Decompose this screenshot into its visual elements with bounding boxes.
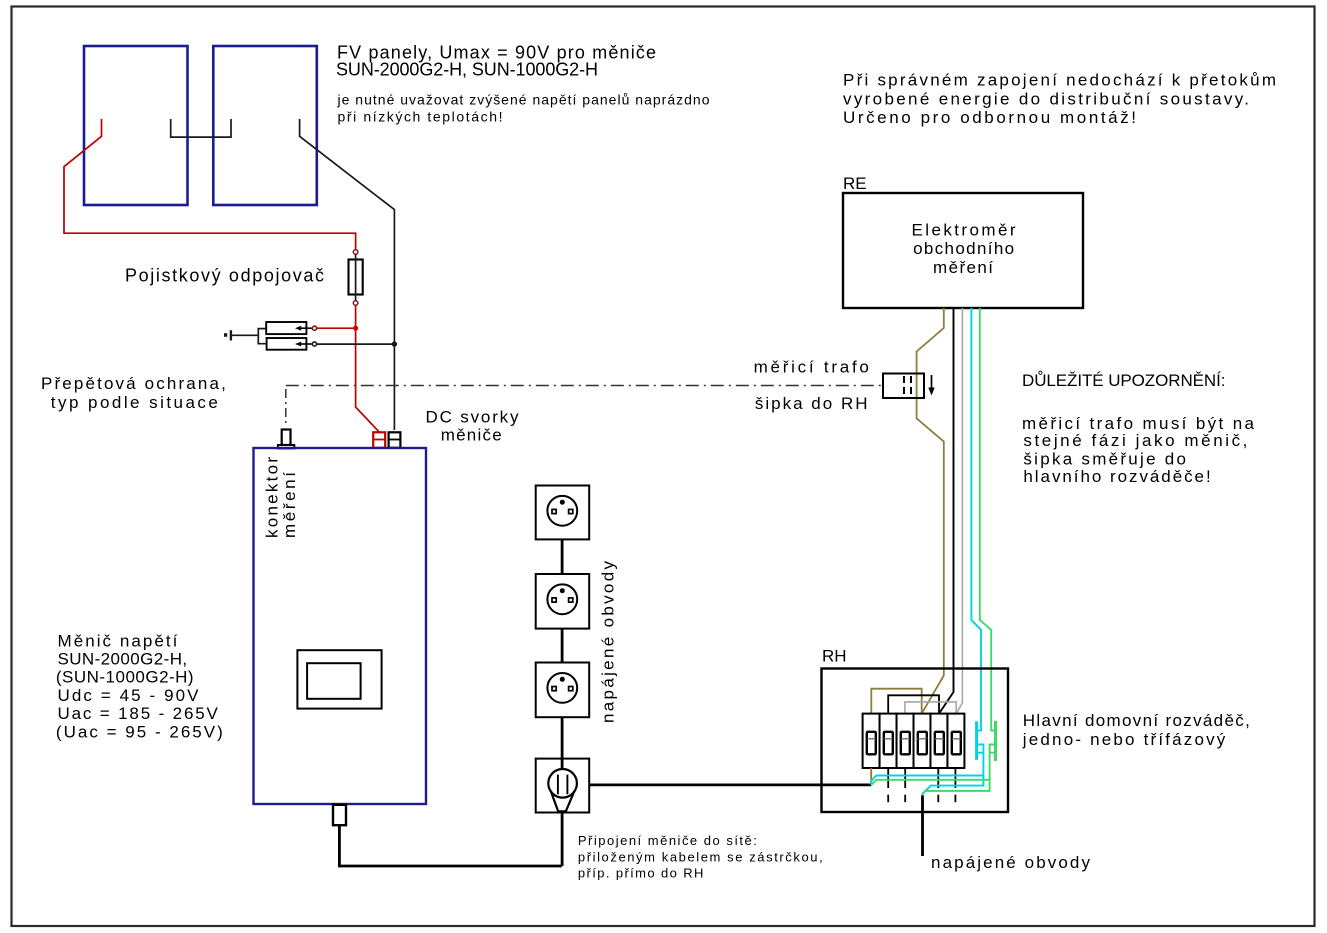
svg-text:SUN-2000G2-H,: SUN-2000G2-H, — [58, 650, 188, 669]
svg-text:Připojení měniče do sítě:: Připojení měniče do sítě: — [578, 833, 757, 848]
svg-text:RH: RH — [822, 647, 847, 666]
svg-text:příp. přímo do RH: příp. přímo do RH — [578, 866, 704, 881]
svg-text:Určeno pro odbornou montáž!: Určeno pro odbornou montáž! — [843, 108, 1136, 127]
svg-text:DC svorky: DC svorky — [426, 407, 520, 426]
svg-text:Pojistkový odpojovač: Pojistkový odpojovač — [125, 266, 324, 286]
svg-text:(SUN-1000G2-H): (SUN-1000G2-H) — [56, 668, 194, 687]
svg-text:obchodního: obchodního — [913, 239, 1014, 258]
svg-text:přiloženým kabelem se zástrčko: přiloženým kabelem se zástrčkou, — [578, 849, 823, 864]
svg-text:stejné fázi jako měnič,: stejné fázi jako měnič, — [1023, 431, 1247, 450]
svg-text:měření: měření — [280, 472, 299, 538]
svg-text:šipka směřuje do: šipka směřuje do — [1023, 450, 1186, 469]
svg-text:je nutné uvažovat zvýšené napě: je nutné uvažovat zvýšené napětí panelů … — [337, 92, 710, 108]
svg-text:typ podle situace: typ podle situace — [51, 393, 218, 412]
svg-text:napájené obvody: napájené obvody — [599, 561, 618, 724]
svg-text:hlavního rozváděče!: hlavního rozváděče! — [1023, 467, 1210, 486]
svg-text:šipka do RH: šipka do RH — [755, 394, 868, 413]
svg-text:měřicí trafo musí být na: měřicí trafo musí být na — [1022, 414, 1255, 433]
svg-text:měření: měření — [933, 258, 993, 277]
svg-text:Uac = 185 - 265V: Uac = 185 - 265V — [58, 704, 219, 723]
svg-text:Při správném zapojení nedocház: Při správném zapojení nedochází k přetok… — [843, 71, 1276, 90]
svg-text:Měnič napětí: Měnič napětí — [58, 631, 178, 650]
svg-text:jedno- nebo třífázový: jedno- nebo třífázový — [1022, 730, 1226, 749]
svg-text:Přepětová ochrana,: Přepětová ochrana, — [41, 374, 226, 393]
svg-text:Udc = 45 - 90V: Udc = 45 - 90V — [58, 686, 200, 705]
svg-text:Elektroměr: Elektroměr — [912, 221, 1016, 240]
svg-text:měřicí trafo: měřicí trafo — [754, 357, 869, 376]
svg-text:vyrobené energie do distribučn: vyrobené energie do distribuční soustavy… — [843, 89, 1249, 108]
svg-text:RE: RE — [843, 174, 867, 193]
svg-text:napájené obvody: napájené obvody — [931, 853, 1091, 872]
svg-text:při nízkých teplotách!: při nízkých teplotách! — [338, 109, 503, 125]
svg-text:SUN-2000G2-H, SUN-1000G2-H: SUN-2000G2-H, SUN-1000G2-H — [336, 60, 598, 80]
svg-text:DŮLEŽITÉ UPOZORNĚNÍ:: DŮLEŽITÉ UPOZORNĚNÍ: — [1022, 371, 1226, 390]
svg-text:konektor: konektor — [263, 457, 282, 538]
svg-text:Hlavní domovní rozváděč,: Hlavní domovní rozváděč, — [1023, 711, 1250, 730]
svg-text:měniče: měniče — [441, 425, 502, 444]
svg-text:(Uac = 95 - 265V): (Uac = 95 - 265V) — [56, 722, 223, 741]
